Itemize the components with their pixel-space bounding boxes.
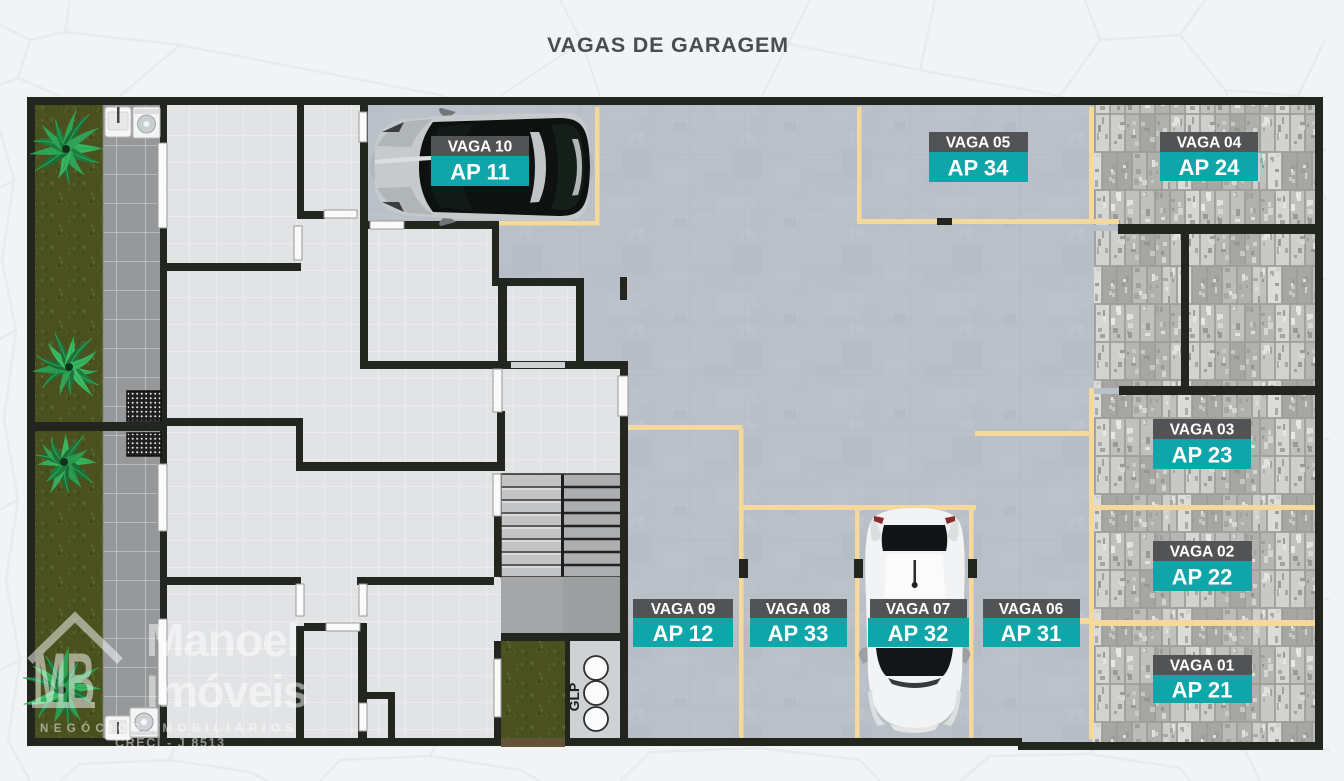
svg-text:MB: MB	[33, 638, 95, 723]
svg-text:VAGA 04: VAGA 04	[1177, 135, 1242, 152]
svg-text:AP 34: AP 34	[948, 156, 1010, 181]
svg-text:AP 21: AP 21	[1172, 678, 1233, 703]
svg-text:AP 22: AP 22	[1172, 565, 1233, 590]
svg-text:AP 24: AP 24	[1179, 155, 1241, 180]
svg-text:AP 11: AP 11	[450, 160, 510, 185]
svg-text:Manoel: Manoel	[146, 614, 298, 666]
svg-text:VAGA 02: VAGA 02	[1170, 544, 1235, 561]
svg-text:AP 23: AP 23	[1172, 443, 1233, 468]
svg-text:VAGA 10: VAGA 10	[448, 139, 513, 156]
svg-text:Imóveis: Imóveis	[146, 666, 307, 717]
svg-text:AP 31: AP 31	[1001, 621, 1062, 646]
svg-text:AP 33: AP 33	[768, 621, 829, 646]
svg-text:VAGAS DE GARAGEM: VAGAS DE GARAGEM	[547, 33, 789, 57]
svg-text:AP 12: AP 12	[653, 621, 714, 646]
svg-text:VAGA 05: VAGA 05	[946, 135, 1011, 152]
svg-text:GLP: GLP	[566, 683, 582, 712]
svg-text:VAGA 03: VAGA 03	[1170, 422, 1235, 439]
svg-text:CRECI - J 8513: CRECI - J 8513	[115, 736, 226, 750]
svg-text:AP 32: AP 32	[888, 621, 949, 646]
svg-text:VAGA 08: VAGA 08	[766, 601, 831, 618]
svg-text:VAGA 09: VAGA 09	[651, 601, 716, 618]
svg-text:VAGA 07: VAGA 07	[886, 601, 951, 618]
svg-text:VAGA 01: VAGA 01	[1170, 658, 1235, 675]
svg-text:VAGA 06: VAGA 06	[999, 601, 1064, 618]
svg-text:NEGÓCIOS IMOBILIÁRIOS: NEGÓCIOS IMOBILIÁRIOS	[40, 722, 298, 735]
